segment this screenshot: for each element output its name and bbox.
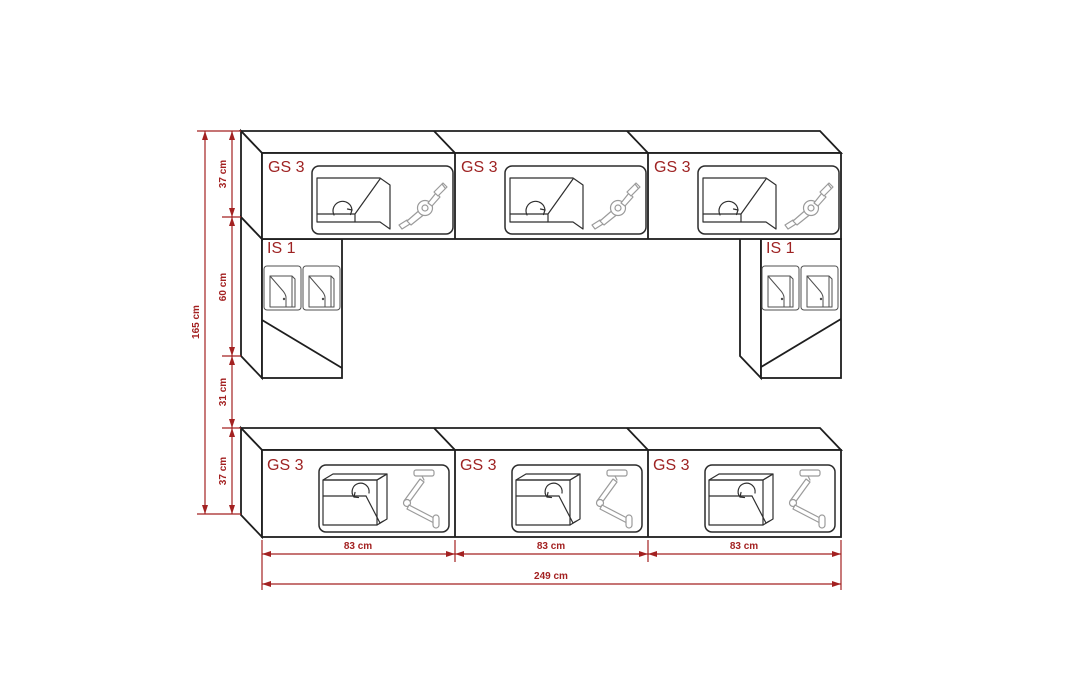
cabinet-label: GS 3	[654, 159, 691, 176]
dim-label-83cm-2: 83 cm	[537, 541, 565, 552]
dim-label-total-height: 165 cm	[191, 305, 202, 339]
column-left-front	[262, 239, 342, 378]
diagram-canvas: IS 1 IS 1 GS 3 GS 3	[0, 0, 1090, 696]
cabinet-label: GS 3	[460, 457, 497, 474]
dim-label-37cm-top: 37 cm	[218, 160, 229, 188]
cabinet-label: GS 3	[461, 159, 498, 176]
dim-label-83cm-3: 83 cm	[730, 541, 758, 552]
dim-label-60cm: 60 cm	[218, 273, 229, 301]
column-left-is1: IS 1	[241, 217, 342, 378]
top-row-top-face	[241, 131, 841, 153]
column-right-side-face	[740, 217, 761, 378]
bottom-row: GS 3 GS 3 GS 3	[241, 428, 841, 537]
dim-label-83cm-1: 83 cm	[344, 541, 372, 552]
cabinet-label: GS 3	[268, 159, 305, 176]
dim-label-31cm: 31 cm	[218, 378, 229, 406]
cabinet-label: GS 3	[267, 457, 304, 474]
dim-label-37cm-bottom: 37 cm	[218, 457, 229, 485]
column-right-label: IS 1	[766, 240, 795, 257]
cabinet-label: GS 3	[653, 457, 690, 474]
dim-label-total-width: 249 cm	[534, 571, 568, 582]
horizontal-dimensions: 83 cm 83 cm 83 cm 249 cm	[262, 540, 841, 590]
column-left-label: IS 1	[267, 240, 296, 257]
column-right-is1: IS 1	[740, 217, 841, 378]
column-left-side-face	[241, 217, 262, 378]
top-row: GS 3 GS 3 GS 3	[241, 131, 841, 239]
bottom-row-top-face	[241, 428, 841, 450]
vertical-dimensions: 165 cm 37 cm 60 cm 31 cm 37 cm	[191, 131, 241, 514]
furniture-dimension-diagram: IS 1 IS 1 GS 3 GS 3	[0, 0, 1090, 696]
